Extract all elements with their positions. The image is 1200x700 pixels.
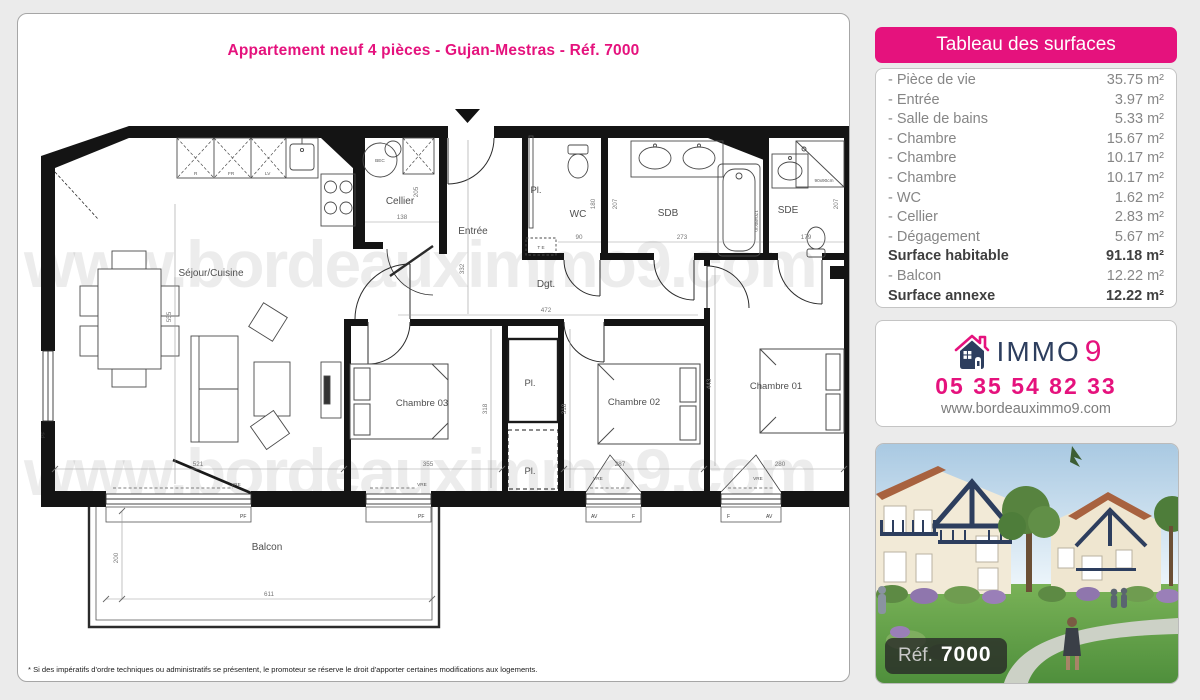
agency-phone: 05 35 54 82 33 bbox=[876, 373, 1176, 400]
surface-row: - Balcon12.22 m² bbox=[888, 267, 1164, 287]
bathtub-size-label: 170x80cm bbox=[754, 210, 759, 232]
dim-355: 355 bbox=[423, 461, 434, 468]
window-tab-ch02-f: F bbox=[632, 514, 635, 520]
room-label-ch03: Chambre 03 bbox=[396, 398, 448, 409]
surface-row: - Chambre15.67 m² bbox=[888, 130, 1164, 150]
room-label-balcon: Balcon bbox=[252, 542, 283, 553]
surface-row: - Chambre10.17 m² bbox=[888, 149, 1164, 169]
sdb-fixtures bbox=[631, 141, 760, 256]
dim-443: 443 bbox=[706, 378, 713, 389]
kitchen-label-fr: FR bbox=[228, 171, 235, 176]
agency-card: IMMO9 05 35 54 82 33 www.bordeauximmo9.c… bbox=[875, 320, 1177, 427]
room-label-pl-lower: Pl. bbox=[524, 466, 535, 477]
residence-photo: Réf. 7000 bbox=[875, 443, 1179, 684]
room-label-sejour: Séjour/Cuisine bbox=[178, 268, 243, 279]
dim-555: 555 bbox=[166, 311, 173, 322]
kitchen-units bbox=[177, 138, 355, 226]
kitchen-label-r: R bbox=[194, 171, 198, 176]
surface-row-label: - Salle de bains bbox=[888, 110, 988, 130]
te-label: T E bbox=[537, 245, 544, 250]
dim-180: 180 bbox=[590, 198, 597, 209]
surface-row-label: - Pièce de vie bbox=[888, 71, 976, 91]
surface-row-label: Surface habitable bbox=[888, 247, 1009, 267]
immo9-logo: IMMO9 bbox=[876, 333, 1176, 371]
surface-row-value: 10.17 m² bbox=[1107, 149, 1164, 169]
dimension-lines bbox=[52, 140, 847, 602]
floor-plan-card: www.bordeauximmo9.com www.bordeauximmo9.… bbox=[17, 13, 850, 682]
window-tab-ch01-f: F bbox=[727, 514, 730, 520]
room-label-dgt: Dgt. bbox=[537, 279, 555, 290]
surface-row: - WC1.62 m² bbox=[888, 189, 1164, 209]
surface-total-row: Surface habitable91.18 m² bbox=[888, 247, 1164, 267]
surface-row-label: - Balcon bbox=[888, 267, 941, 287]
cellier-fixtures bbox=[363, 138, 434, 177]
brand-9-text: 9 bbox=[1085, 335, 1102, 369]
window-tab-ch01-av: AV bbox=[766, 514, 773, 520]
dim-273: 273 bbox=[677, 234, 688, 241]
room-label-pl-entree: Pl. bbox=[530, 185, 541, 196]
dim-207-sdb: 207 bbox=[612, 198, 619, 209]
house-logo-icon bbox=[951, 333, 993, 371]
floor-plan-drawing: VRE VRE VRE VRE PF PF AV F F AV PF R bbox=[18, 14, 849, 681]
dim-179: 179 bbox=[801, 234, 812, 241]
page: { "colors": {"accent": "#e5127d", "navy"… bbox=[0, 0, 1200, 700]
room-label-ch02: Chambre 02 bbox=[608, 397, 660, 408]
surface-row-value: 35.75 m² bbox=[1107, 71, 1164, 91]
room-label-wc: WC bbox=[570, 209, 587, 220]
balcony-rail bbox=[89, 507, 439, 627]
beds bbox=[350, 349, 844, 444]
window-label-ch01-vre: VRE bbox=[753, 476, 763, 481]
surface-row-value: 1.62 m² bbox=[1115, 189, 1164, 209]
disclaimer-text: * Si des impératifs d'ordre techniques o… bbox=[28, 665, 537, 674]
room-label-entree: Entrée bbox=[458, 226, 488, 237]
window-tab-ch02-av: AV bbox=[591, 514, 598, 520]
surface-row-value: 2.83 m² bbox=[1115, 208, 1164, 228]
window-tab-ch03-pf: PF bbox=[418, 514, 424, 520]
dim-207-sde: 207 bbox=[833, 198, 840, 209]
surface-row: - Pièce de vie35.75 m² bbox=[888, 71, 1164, 91]
cellier-bec-label: BEC bbox=[375, 158, 385, 163]
dim-138: 138 bbox=[397, 214, 408, 221]
surface-row-label: - Dégagement bbox=[888, 228, 980, 248]
surface-row-label: - Chambre bbox=[888, 130, 957, 150]
surfaces-table-card: - Pièce de vie35.75 m²- Entrée3.97 m²- S… bbox=[875, 68, 1177, 308]
surface-row-value: 10.17 m² bbox=[1107, 169, 1164, 189]
room-label-cellier: Cellier bbox=[386, 196, 415, 207]
kitchen-label-lv: LV bbox=[265, 171, 271, 176]
window-label-sejour-vre: VRE bbox=[231, 482, 241, 487]
surface-row-label: - Entrée bbox=[888, 91, 940, 111]
room-label-pl-upper: Pl. bbox=[524, 378, 535, 389]
window-label-ch02-vre: VRE bbox=[593, 476, 603, 481]
window-label-ch03-vre: VRE bbox=[417, 482, 427, 487]
window-tab-sejour-pf: PF bbox=[240, 514, 246, 520]
shower-size-label: 90x90cm bbox=[814, 178, 833, 183]
surface-row: - Cellier2.83 m² bbox=[888, 208, 1164, 228]
surface-row-value: 12.22 m² bbox=[1107, 267, 1164, 287]
dim-318-b: 318 bbox=[561, 403, 568, 414]
dim-521: 521 bbox=[193, 461, 204, 468]
photo-ref-badge: Réf. 7000 bbox=[885, 638, 1007, 674]
dim-472: 472 bbox=[541, 307, 552, 314]
brand-immo-text: IMMO bbox=[997, 336, 1081, 368]
surface-row: - Salle de bains5.33 m² bbox=[888, 110, 1164, 130]
surface-row-value: 15.67 m² bbox=[1107, 130, 1164, 150]
surface-row-label: - Cellier bbox=[888, 208, 938, 228]
surface-row-value: 3.97 m² bbox=[1115, 91, 1164, 111]
surface-row-value: 91.18 m² bbox=[1106, 247, 1164, 267]
surfaces-table-header: Tableau des surfaces bbox=[875, 27, 1177, 63]
agency-website: www.bordeauximmo9.com bbox=[876, 401, 1176, 417]
surface-row-label: Surface annexe bbox=[888, 287, 995, 307]
dim-318-a: 318 bbox=[482, 403, 489, 414]
surface-row: - Entrée3.97 m² bbox=[888, 91, 1164, 111]
surface-row-label: - WC bbox=[888, 189, 921, 209]
entrance-marker-icon bbox=[455, 109, 480, 123]
dim-611: 611 bbox=[264, 591, 275, 598]
surfaces-table: - Pièce de vie35.75 m²- Entrée3.97 m²- S… bbox=[888, 71, 1164, 306]
dim-200: 200 bbox=[113, 552, 120, 563]
dim-90: 90 bbox=[575, 234, 583, 241]
room-label-sde: SDE bbox=[778, 205, 799, 216]
dim-287: 287 bbox=[615, 461, 626, 468]
room-label-ch01: Chambre 01 bbox=[750, 381, 802, 392]
surface-row-value: 5.33 m² bbox=[1115, 110, 1164, 130]
room-label-sdb: SDB bbox=[658, 208, 679, 219]
surface-row: - Dégagement5.67 m² bbox=[888, 228, 1164, 248]
surface-row-value: 12.22 m² bbox=[1106, 287, 1164, 307]
surface-total-row: Surface annexe12.22 m² bbox=[888, 287, 1164, 307]
surface-row: - Chambre10.17 m² bbox=[888, 169, 1164, 189]
ref-label: Réf. bbox=[898, 645, 933, 667]
window-tab-left-pf: PF bbox=[41, 432, 47, 438]
ref-value: 7000 bbox=[941, 643, 992, 667]
surface-row-label: - Chambre bbox=[888, 149, 957, 169]
dim-280: 280 bbox=[775, 461, 786, 468]
dim-332: 332 bbox=[459, 263, 466, 274]
sejour-furniture bbox=[80, 251, 341, 449]
surface-row-label: - Chambre bbox=[888, 169, 957, 189]
surface-row-value: 5.67 m² bbox=[1115, 228, 1164, 248]
